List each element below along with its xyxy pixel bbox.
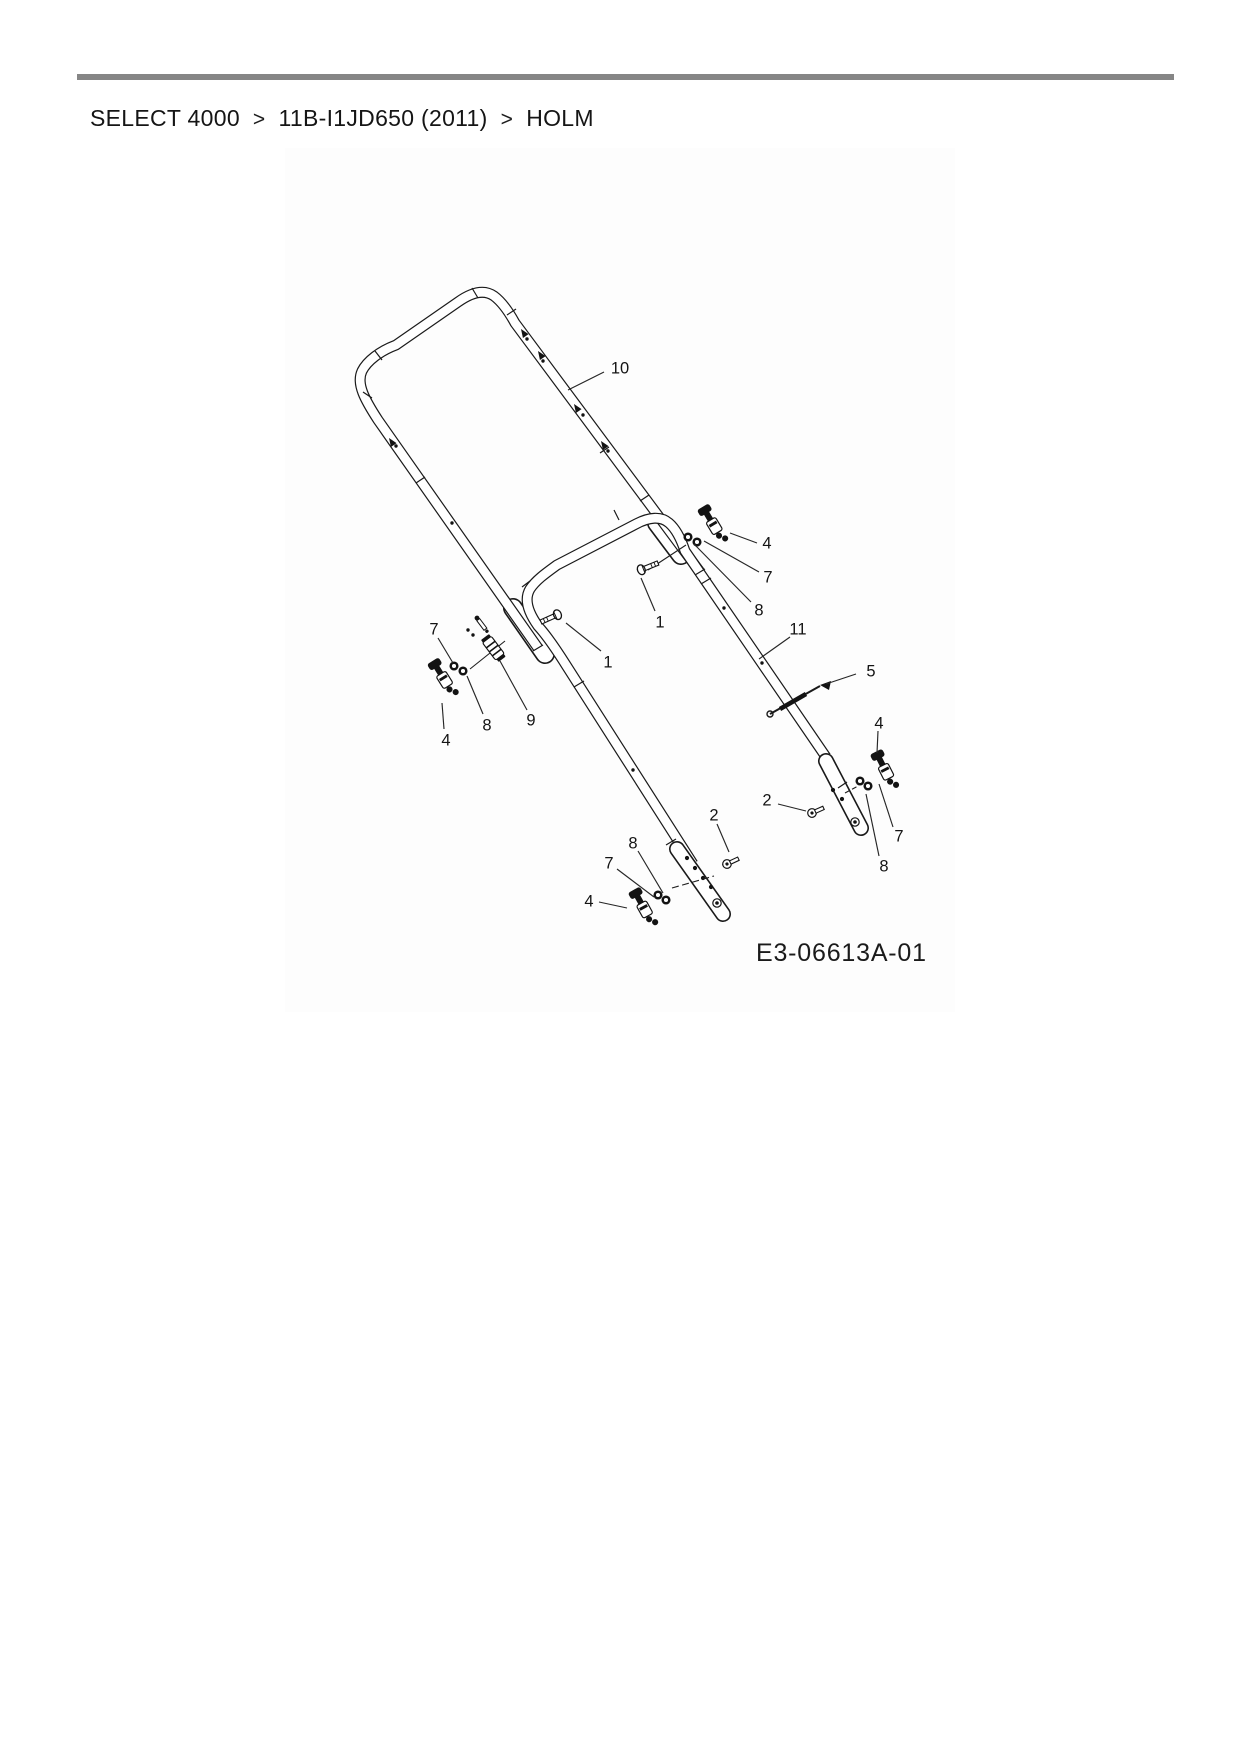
- callout-label-7: 7: [604, 855, 613, 873]
- callout-label-11: 11: [789, 621, 806, 639]
- callout-label-8: 8: [482, 717, 491, 735]
- callout-label-9: 9: [526, 712, 535, 730]
- callout-label-4: 4: [874, 715, 883, 733]
- callout-label-4: 4: [441, 732, 450, 750]
- parts-catalog-page: SELECT 4000>11B-I1JD650 (2011)>HOLM: [0, 0, 1240, 1754]
- callout-label-7: 7: [894, 828, 903, 846]
- guide-pin-washer: [466, 628, 469, 631]
- exploded-parts-diagram: 1011478115478228747894 E3-06613A-01: [0, 0, 1240, 1754]
- callout-label-4: 4: [762, 535, 771, 553]
- callout-label-1: 1: [603, 654, 612, 672]
- guide-pin-washer: [471, 633, 474, 636]
- callout-label-8: 8: [628, 835, 637, 853]
- callout-label-5: 5: [866, 663, 875, 681]
- callout-label-10: 10: [611, 360, 629, 378]
- callout-label-2: 2: [709, 807, 718, 825]
- diagram-canvas: [285, 148, 955, 1012]
- callout-label-7: 7: [429, 621, 438, 639]
- callout-label-1: 1: [655, 614, 664, 632]
- callout-label-8: 8: [879, 858, 888, 876]
- diagram-part-code: E3-06613A-01: [756, 939, 927, 967]
- callout-label-4: 4: [584, 893, 593, 911]
- callout-label-7: 7: [763, 569, 772, 587]
- callout-label-2: 2: [762, 792, 771, 810]
- callout-label-8: 8: [754, 602, 763, 620]
